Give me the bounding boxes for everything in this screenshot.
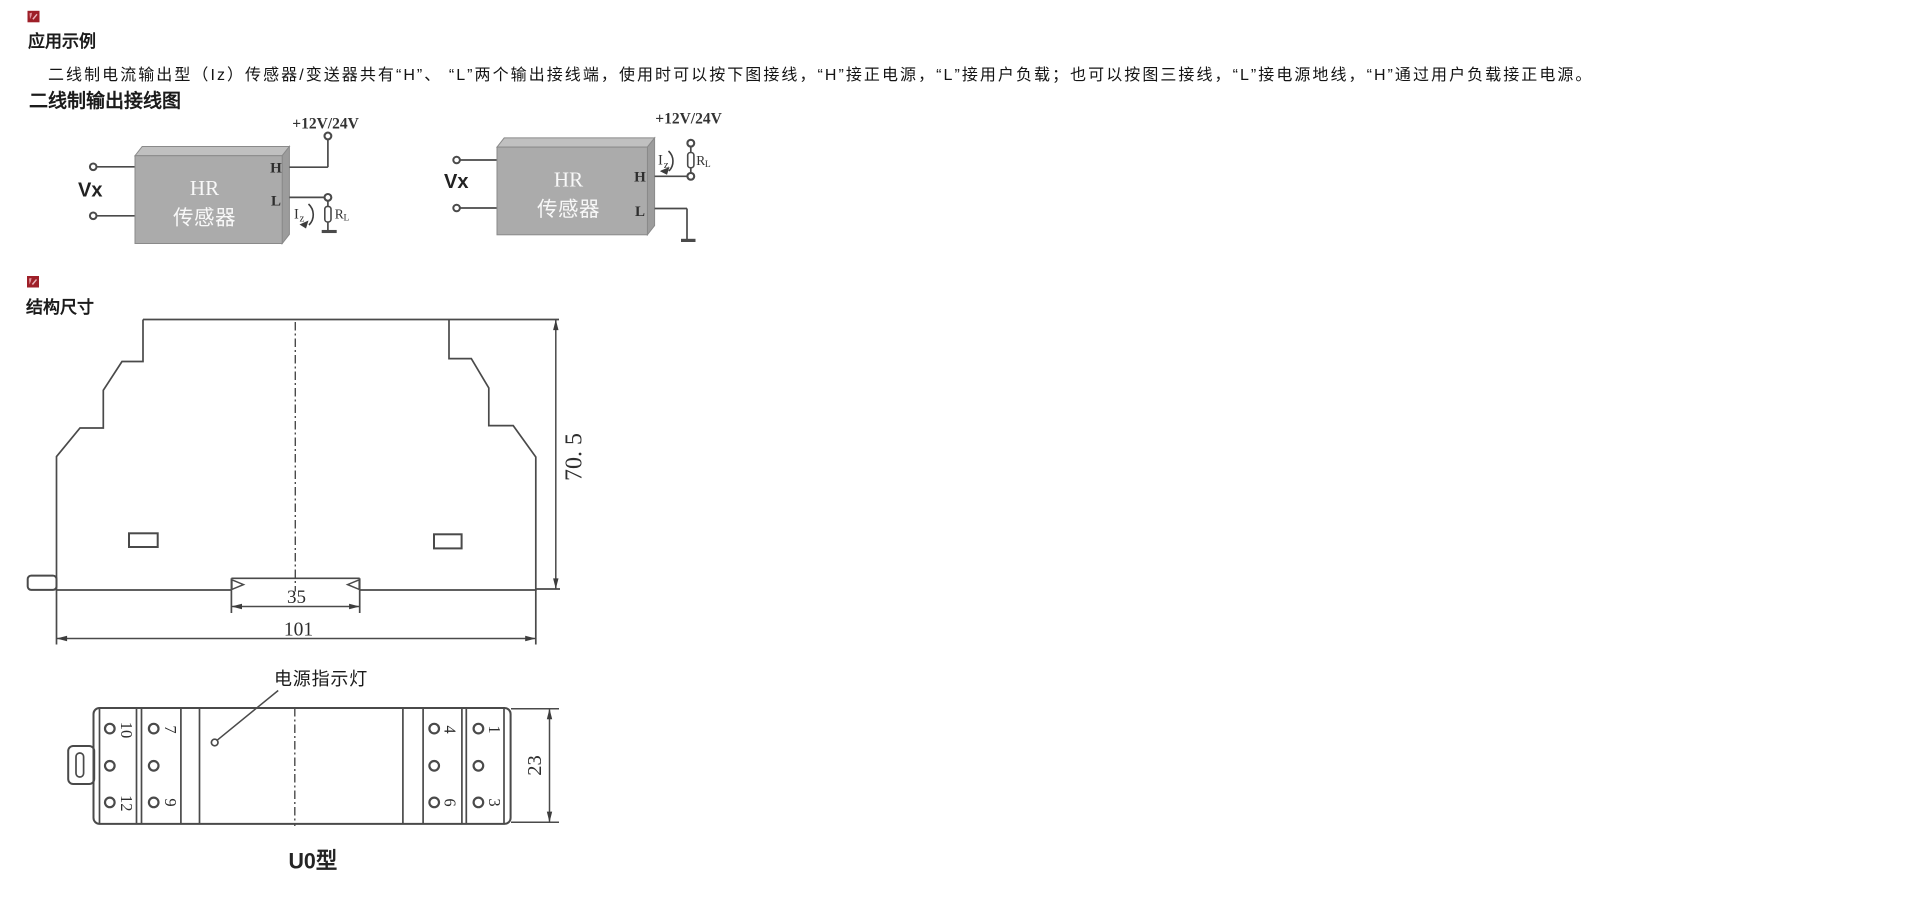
- svg-text:HR: HR: [190, 176, 219, 200]
- svg-text:Vx: Vx: [78, 180, 102, 202]
- svg-text:HR: HR: [554, 168, 583, 192]
- svg-text:35: 35: [287, 587, 306, 608]
- svg-text:H: H: [270, 161, 282, 177]
- svg-text:L: L: [344, 214, 350, 224]
- svg-text:H: H: [634, 170, 646, 186]
- svg-text:U0型: U0型: [289, 848, 338, 874]
- svg-text:4: 4: [441, 725, 460, 733]
- svg-text:L: L: [635, 204, 645, 220]
- svg-text:R: R: [696, 153, 705, 168]
- svg-text:6: 6: [441, 798, 460, 806]
- svg-text:+12V/24V: +12V/24V: [292, 116, 359, 133]
- svg-text:70. 5: 70. 5: [562, 433, 588, 481]
- svg-text:101: 101: [284, 619, 313, 640]
- svg-text:12: 12: [117, 795, 136, 812]
- svg-text:3: 3: [485, 798, 504, 806]
- svg-text:传感器: 传感器: [173, 207, 236, 230]
- svg-text:+12V/24V: +12V/24V: [655, 111, 722, 128]
- svg-text:传感器: 传感器: [537, 198, 600, 221]
- svg-text:I: I: [294, 207, 299, 223]
- svg-text:电源指示灯: 电源指示灯: [274, 669, 368, 689]
- svg-text:I: I: [658, 153, 663, 169]
- svg-text:Vx: Vx: [444, 171, 468, 193]
- svg-text:L: L: [705, 160, 711, 170]
- svg-text:1: 1: [485, 725, 504, 733]
- svg-text:7: 7: [161, 725, 180, 733]
- svg-text:10: 10: [117, 722, 136, 739]
- svg-text:L: L: [271, 193, 281, 209]
- svg-text:9: 9: [161, 798, 180, 806]
- svg-text:R: R: [335, 207, 344, 222]
- svg-text:23: 23: [524, 755, 546, 776]
